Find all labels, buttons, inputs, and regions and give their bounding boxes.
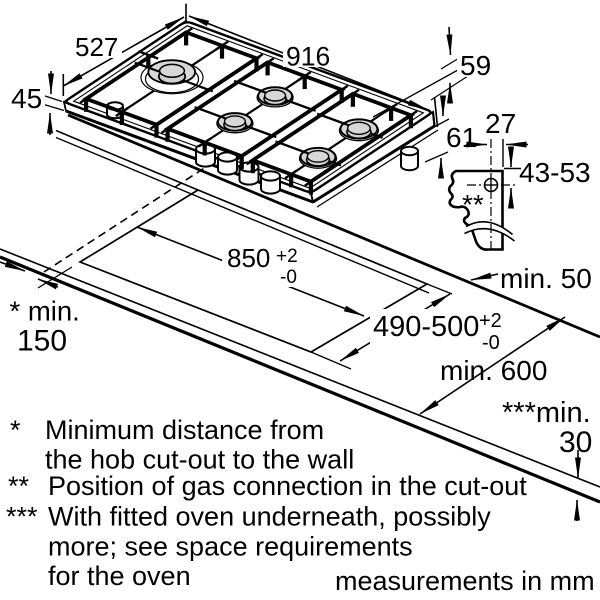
svg-text:***: ***: [6, 502, 38, 532]
svg-text:Position of gas connection in: Position of gas connection in the cut-ou…: [48, 471, 527, 501]
svg-text:**: **: [462, 189, 484, 220]
svg-text:min. 50: min. 50: [500, 263, 592, 294]
svg-text:min. 600: min. 600: [440, 355, 547, 386]
svg-text:+2: +2: [276, 246, 298, 267]
svg-text:150: 150: [17, 325, 67, 358]
svg-text:45: 45: [11, 83, 42, 114]
svg-text:***min.: ***min.: [502, 397, 591, 429]
svg-text:-0: -0: [482, 332, 500, 354]
svg-text:With fitted oven underneath, p: With fitted oven underneath, possibly: [48, 502, 491, 532]
svg-text:*: *: [10, 415, 21, 445]
svg-text:the hob cut-out to the wall: the hob cut-out to the wall: [45, 445, 354, 475]
svg-text:-0: -0: [280, 267, 297, 288]
svg-text:527: 527: [75, 32, 118, 62]
svg-text:* min.: * min.: [10, 296, 80, 327]
svg-text:for the oven: for the oven: [48, 561, 191, 591]
svg-text:27: 27: [485, 108, 516, 139]
svg-text:850: 850: [227, 243, 270, 273]
svg-text:490-500: 490-500: [373, 311, 479, 343]
svg-text:+2: +2: [479, 310, 502, 332]
svg-text:43-53: 43-53: [519, 157, 591, 188]
svg-text:Minimum distance from: Minimum distance from: [45, 415, 324, 445]
svg-text:more; see space requirements: more; see space requirements: [48, 532, 413, 562]
svg-text:30: 30: [559, 426, 592, 459]
svg-text:measurements in mm: measurements in mm: [335, 566, 595, 596]
svg-text:61: 61: [446, 122, 477, 153]
svg-text:916: 916: [286, 42, 330, 72]
svg-text:59: 59: [460, 50, 491, 81]
svg-text:**: **: [8, 471, 30, 501]
